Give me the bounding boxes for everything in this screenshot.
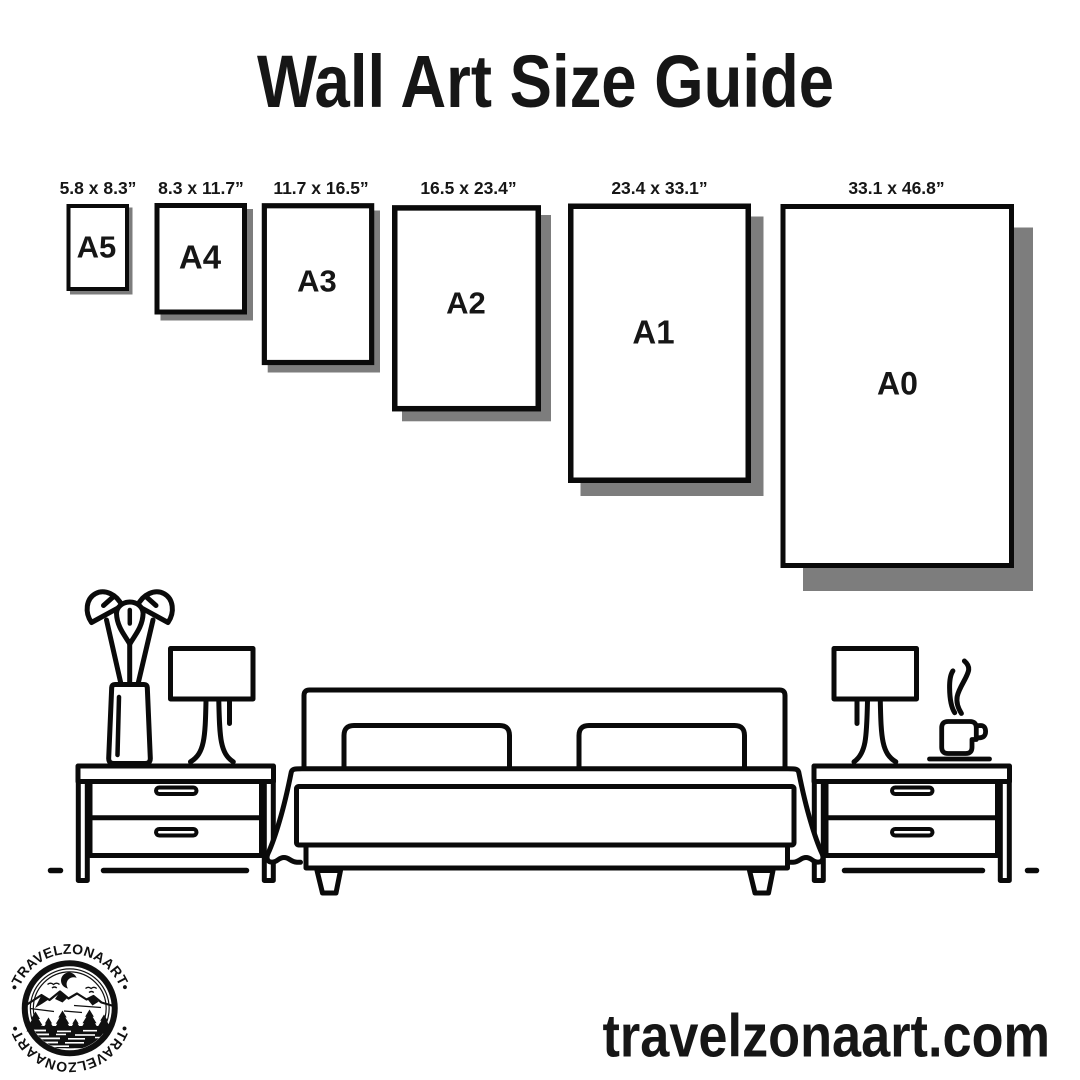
svg-text:11.7 x 16.5”: 11.7 x 16.5” (273, 178, 368, 198)
svg-text:A5: A5 (77, 230, 117, 265)
svg-text:33.1 x 46.8”: 33.1 x 46.8” (848, 178, 944, 198)
svg-text:A4: A4 (179, 239, 222, 276)
svg-text:A1: A1 (632, 314, 674, 351)
svg-text:A0: A0 (877, 366, 918, 402)
svg-text:16.5 x 23.4”: 16.5 x 23.4” (420, 178, 516, 198)
svg-text:23.4 x 33.1”: 23.4 x 33.1” (611, 178, 707, 198)
svg-text:Wall Art Size Guide: Wall Art Size Guide (257, 40, 834, 123)
svg-text:A2: A2 (446, 286, 486, 321)
svg-text:A3: A3 (297, 264, 337, 299)
svg-text:5.8 x 8.3”: 5.8 x 8.3” (60, 178, 137, 198)
svg-text:travelzonaart.com: travelzonaart.com (603, 1003, 1051, 1070)
svg-text:8.3 x 11.7”: 8.3 x 11.7” (158, 178, 244, 198)
